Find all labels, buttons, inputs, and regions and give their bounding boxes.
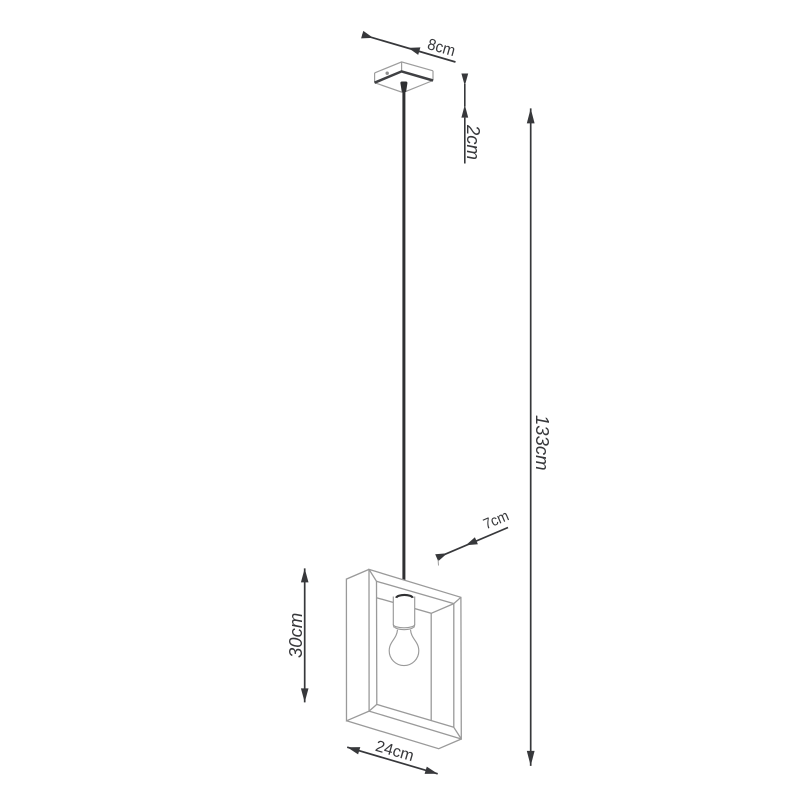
svg-text:30cm: 30cm bbox=[285, 613, 306, 658]
svg-text:133cm: 133cm bbox=[532, 415, 553, 471]
svg-text:2cm: 2cm bbox=[463, 124, 484, 160]
